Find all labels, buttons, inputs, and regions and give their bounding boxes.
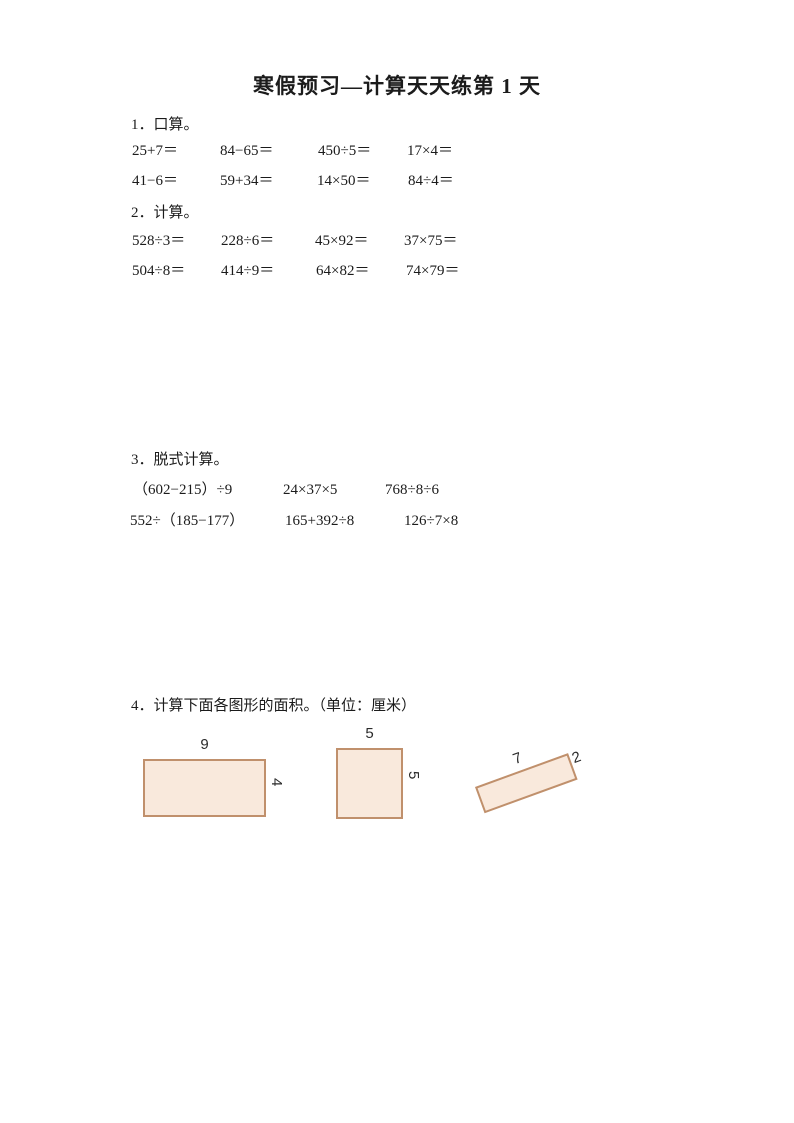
- oral-problem: 25+7＝: [132, 142, 178, 160]
- stepwise-expression: 165+392÷8: [285, 512, 354, 530]
- dimension-label-top: 9: [143, 737, 266, 754]
- stepwise-expression: 768÷8÷6: [385, 481, 439, 499]
- dimension-label-side: 5: [405, 771, 422, 779]
- oral-problem: 84−65＝: [220, 142, 273, 160]
- stepwise-expression: 24×37×5: [283, 481, 337, 499]
- written-problem: 504÷8＝: [132, 262, 185, 280]
- section-heading-oral: 1．口算。: [131, 116, 199, 134]
- rectangle-shape: [143, 759, 266, 817]
- written-problem: 64×82＝: [316, 262, 369, 280]
- rotated-rectangle-shape: [475, 753, 578, 813]
- page-title: 寒假预习—计算天天练第 1 天: [0, 70, 794, 100]
- written-problem: 414÷9＝: [221, 262, 274, 280]
- oral-problem: 14×50＝: [317, 172, 370, 190]
- stepwise-expression: 552÷（185−177）: [130, 512, 244, 530]
- oral-problem: 41−6＝: [132, 172, 178, 190]
- oral-problem: 84÷4＝: [408, 172, 454, 190]
- section-heading-area: 4．计算下面各图形的面积。（单位：厘米）: [131, 697, 416, 715]
- oral-problem: 450÷5＝: [318, 142, 371, 160]
- written-problem: 228÷6＝: [221, 232, 274, 250]
- section-heading-stepwise: 3．脱式计算。: [131, 451, 229, 469]
- dimension-label-long-side: 7: [511, 750, 524, 768]
- dimension-label-top: 5: [336, 726, 403, 743]
- worksheet-page: 寒假预习—计算天天练第 1 天 1．口算。 25+7＝ 84−65＝ 450÷5…: [0, 0, 794, 1123]
- square-shape: [336, 748, 403, 819]
- written-problem: 74×79＝: [406, 262, 459, 280]
- written-problem: 37×75＝: [404, 232, 457, 250]
- stepwise-expression: （602−215）÷9: [133, 481, 232, 499]
- written-problem: 45×92＝: [315, 232, 368, 250]
- oral-problem: 59+34＝: [220, 172, 273, 190]
- oral-problem: 17×4＝: [407, 142, 453, 160]
- written-problem: 528÷3＝: [132, 232, 185, 250]
- dimension-label-side: 4: [268, 778, 285, 786]
- section-heading-written: 2．计算。: [131, 204, 199, 222]
- stepwise-expression: 126÷7×8: [404, 512, 458, 530]
